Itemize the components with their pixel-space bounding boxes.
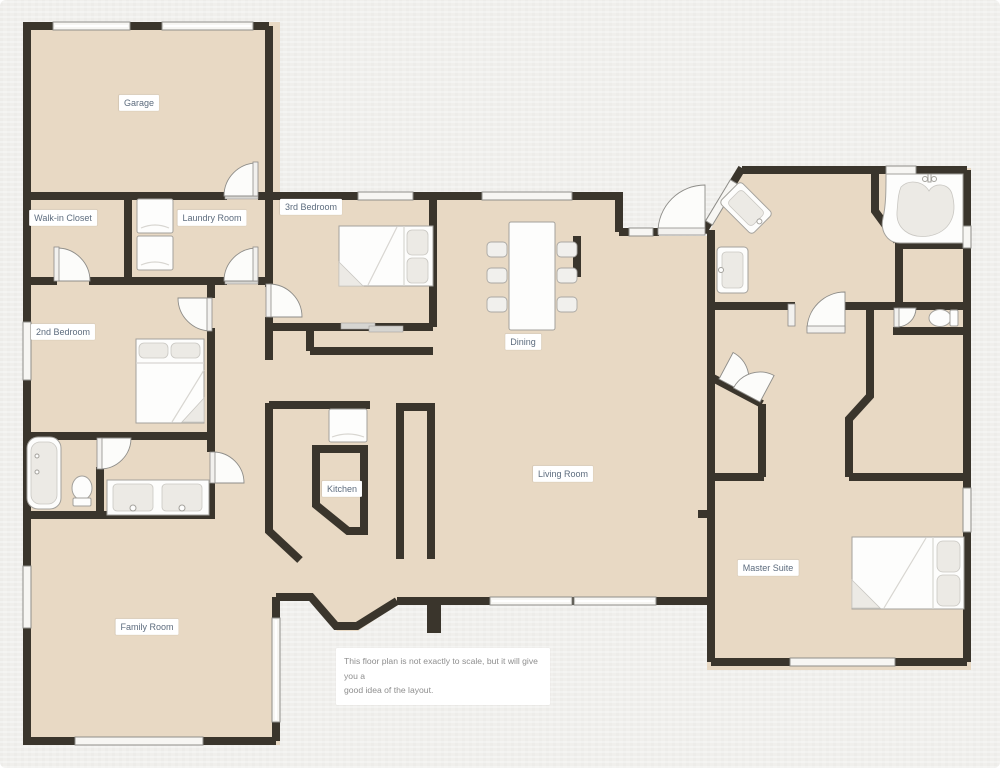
disclaimer-note: This floor plan is not exactly to scale,… [336,648,550,705]
bed-icon-master [852,537,964,609]
bathtub-icon [27,437,61,509]
corner-tub-icon [882,174,963,243]
disclaimer-line-1: This floor plan is not exactly to scale,… [344,654,542,683]
room-label-family-room: Family Room [115,619,178,635]
double-vanity-icon [107,480,209,515]
front-entry-door-arc [658,185,705,232]
bed-icon-2nd-bedroom [136,339,204,423]
room-label-garage: Garage [119,95,159,111]
refrigerator-icon [329,409,367,442]
disclaimer-line-2: good idea of the layout. [344,683,542,698]
3rd-bedroom-closet-slider [369,326,403,332]
room-label-living-room: Living Room [533,466,593,482]
room-label-3rd-bedroom: 3rd Bedroom [280,199,342,215]
bed-icon-3rd-bedroom [339,226,433,286]
room-label-laundry-room: Laundry Room [177,210,246,226]
room-label-walk-in-closet: Walk-in Closet [29,210,97,226]
room-label-dining: Dining [505,334,541,350]
sink-icon-master [717,247,748,293]
room-label-master-suite: Master Suite [738,560,799,576]
toilet-icon-master-wc [929,310,958,327]
chimney [427,601,441,633]
floor-plan: GarageWalk-in ClosetLaundry Room3rd Bedr… [0,0,1000,768]
room-label-2nd-bedroom: 2nd Bedroom [31,324,95,340]
toilet-icon-hall-bath [72,476,92,506]
room-label-kitchen: Kitchen [322,481,362,497]
